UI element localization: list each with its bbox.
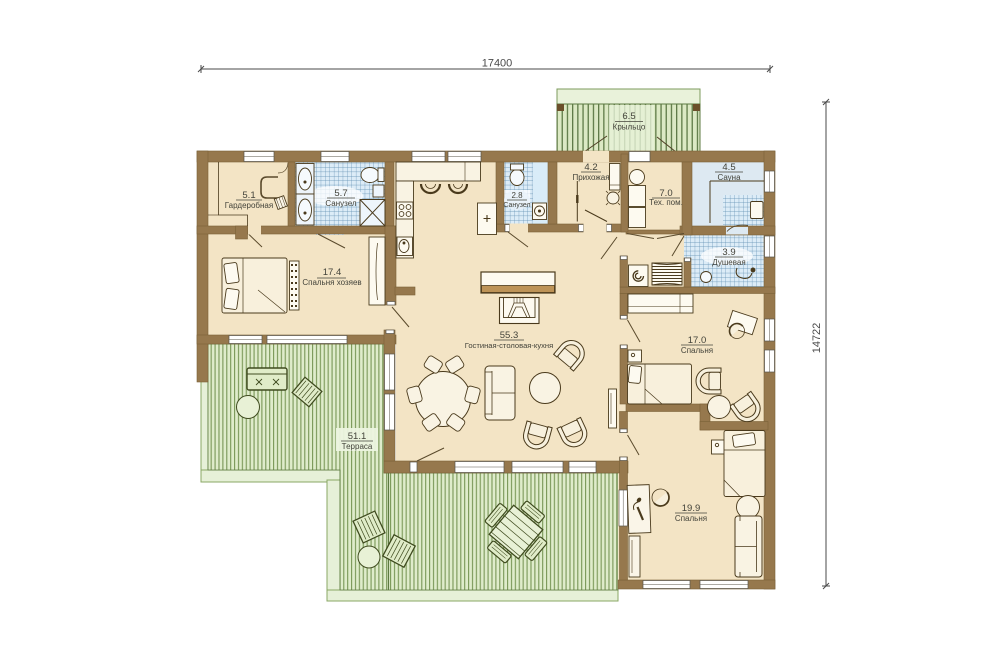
svg-text:17400: 17400 <box>482 58 513 70</box>
svg-text:14722: 14722 <box>811 323 823 354</box>
svg-text:6.5: 6.5 <box>622 111 635 122</box>
svg-text:55.3: 55.3 <box>500 330 519 341</box>
svg-text:19.9: 19.9 <box>682 503 701 514</box>
svg-text:Сауна: Сауна <box>717 173 741 182</box>
svg-text:Санузел: Санузел <box>503 202 530 209</box>
svg-text:Крыльцо: Крыльцо <box>613 123 646 132</box>
svg-text:17.4: 17.4 <box>323 267 342 278</box>
svg-text:Гостиная-столовая-кухня: Гостиная-столовая-кухня <box>465 341 554 350</box>
svg-text:17.0: 17.0 <box>688 335 707 346</box>
svg-text:Санузел: Санузел <box>325 199 356 208</box>
svg-text:Тех. пом.: Тех. пом. <box>649 198 683 207</box>
svg-text:2.8: 2.8 <box>511 191 523 200</box>
svg-text:5.1: 5.1 <box>242 190 255 201</box>
svg-text:5.7: 5.7 <box>334 188 347 199</box>
svg-text:Спальня: Спальня <box>681 346 713 355</box>
svg-text:Спальня хозяев: Спальня хозяев <box>302 278 361 287</box>
svg-text:Гардеробная: Гардеробная <box>225 201 273 210</box>
svg-text:Спальня: Спальня <box>675 514 707 523</box>
svg-text:3.9: 3.9 <box>722 247 735 258</box>
svg-text:Прихожая: Прихожая <box>572 173 609 182</box>
svg-text:4.2: 4.2 <box>584 162 597 173</box>
svg-text:Терраса: Терраса <box>342 442 373 451</box>
svg-text:Душевая: Душевая <box>712 258 745 267</box>
svg-text:4.5: 4.5 <box>722 162 735 173</box>
svg-text:51.1: 51.1 <box>348 431 367 442</box>
